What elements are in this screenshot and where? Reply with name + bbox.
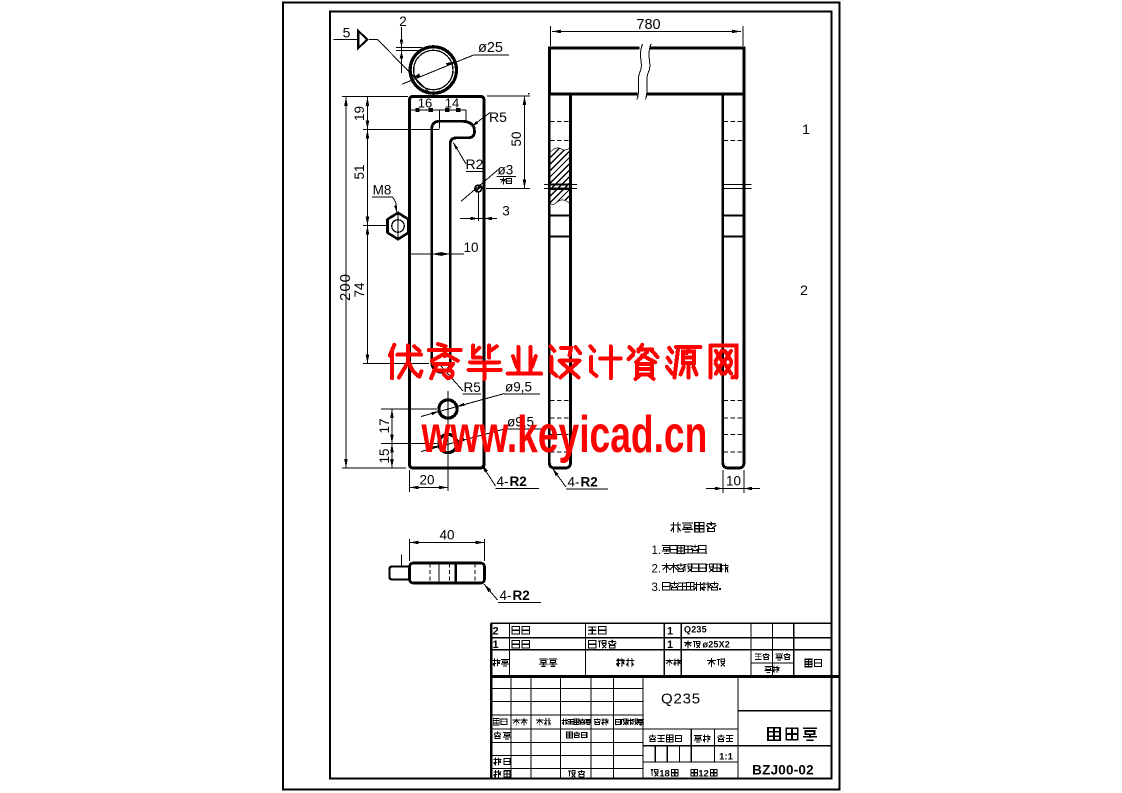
svg-text:1.: 1. (652, 545, 662, 557)
svg-text:R5: R5 (464, 380, 481, 395)
svg-text:18: 18 (659, 769, 670, 780)
svg-text:50: 50 (509, 131, 524, 146)
svg-text:1:1: 1:1 (719, 752, 733, 763)
svg-text:5: 5 (343, 25, 351, 41)
svg-text:74: 74 (352, 282, 367, 298)
svg-text:14: 14 (445, 96, 459, 111)
svg-text:10: 10 (463, 240, 478, 255)
svg-text:R5: R5 (489, 109, 507, 125)
svg-text:3.: 3. (652, 582, 662, 594)
svg-text:1: 1 (667, 626, 673, 638)
svg-text:51: 51 (352, 164, 367, 179)
svg-text:1: 1 (667, 639, 673, 651)
svg-text:16: 16 (418, 96, 432, 111)
svg-text:Q235: Q235 (661, 691, 701, 708)
svg-text:2: 2 (492, 626, 498, 638)
svg-text:17: 17 (377, 418, 392, 433)
svg-text:3: 3 (502, 204, 510, 219)
svg-text:1: 1 (492, 639, 498, 651)
svg-text:4-: 4- (500, 588, 512, 603)
svg-text:M8: M8 (373, 183, 392, 198)
svg-text:Q235: Q235 (684, 625, 707, 635)
svg-text:BZJ00-02: BZJ00-02 (752, 763, 814, 778)
svg-text:15: 15 (377, 448, 392, 463)
svg-text:780: 780 (636, 17, 660, 33)
svg-text:R2: R2 (466, 156, 484, 172)
svg-text:4-: 4- (497, 474, 509, 489)
svg-text:10: 10 (726, 474, 741, 489)
svg-text:20: 20 (419, 473, 434, 488)
svg-text:ø9,5: ø9,5 (505, 380, 532, 395)
svg-text:1: 1 (802, 121, 810, 137)
svg-text:19: 19 (352, 106, 367, 121)
svg-text:R2: R2 (510, 474, 527, 489)
svg-text:2: 2 (399, 14, 407, 29)
svg-text:R2: R2 (513, 588, 530, 603)
svg-text:ø3: ø3 (498, 163, 514, 178)
svg-text:www.keyicad.cn: www.keyicad.cn (421, 405, 708, 464)
svg-text:40: 40 (439, 528, 454, 543)
svg-text:2: 2 (800, 282, 808, 298)
svg-text:R2: R2 (581, 475, 598, 490)
svg-text:ø25X2: ø25X2 (703, 640, 731, 650)
svg-text:4-: 4- (568, 475, 580, 490)
svg-text:ø25: ø25 (478, 40, 503, 56)
svg-text:12: 12 (698, 769, 709, 780)
svg-text:2.: 2. (652, 564, 662, 576)
